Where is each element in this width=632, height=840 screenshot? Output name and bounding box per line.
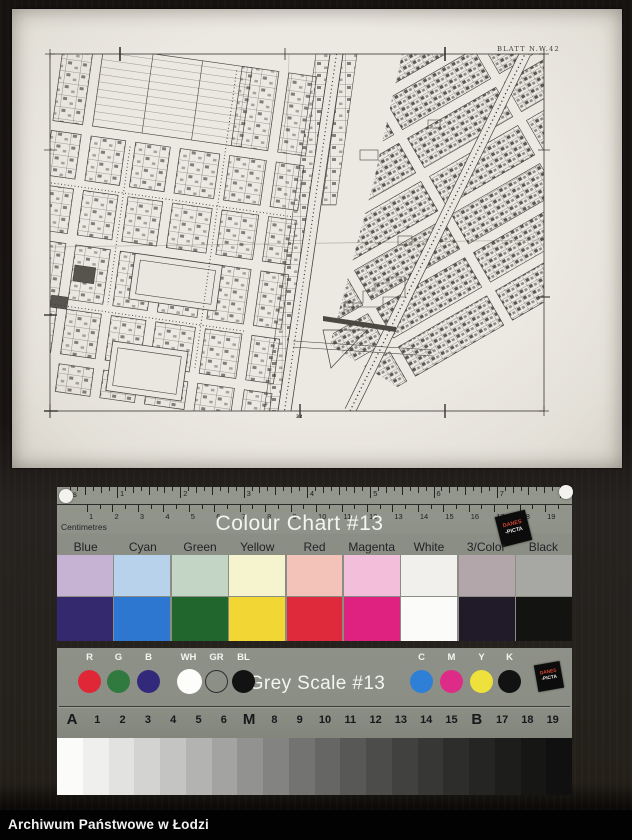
cm-tick — [138, 505, 139, 512]
inch-number: 1 — [120, 489, 124, 498]
grey-step — [160, 738, 186, 795]
cm-tick — [291, 505, 292, 512]
color-swatch-pastel — [516, 555, 572, 596]
color-swatch-pastel — [57, 555, 113, 596]
ruler-tick — [93, 487, 94, 491]
cm-half-tick — [431, 505, 432, 509]
color-swatch-solid — [229, 597, 285, 641]
ruler-tick — [228, 487, 229, 493]
solid-swatch-row — [57, 597, 572, 641]
grey-step — [186, 738, 212, 795]
grey-step — [495, 738, 521, 795]
danes-picta-logo: DANES-PICTA — [534, 661, 564, 692]
cm-tick — [214, 505, 215, 512]
grey-scale-card: Grey Scale #13 DANES-PICTA RGBWHGRBLCMYK… — [57, 648, 572, 795]
ruler-tick — [418, 487, 419, 493]
inch-number: 4 — [310, 489, 314, 498]
color-swatch-pastel — [229, 555, 285, 596]
ruler-tick — [489, 487, 490, 491]
cm-tick — [240, 505, 241, 512]
ruler-tick — [370, 487, 371, 498]
ruler-tick — [497, 487, 498, 498]
y-dot — [470, 670, 493, 693]
index-label: 14 — [413, 714, 439, 726]
ruler-tick — [244, 487, 245, 498]
cm-half-tick — [100, 505, 101, 509]
index-label: 5 — [186, 714, 212, 726]
cm-half-tick — [227, 505, 228, 509]
color-swatch-pastel — [287, 555, 343, 596]
ruler-tick — [378, 487, 379, 491]
colour-chart-title: Colour Chart #13 — [57, 512, 542, 536]
index-label: 11 — [337, 714, 363, 726]
ruler-tick — [513, 487, 514, 493]
ruler-tick — [157, 487, 158, 491]
r-dot — [78, 670, 101, 693]
index-label: 12 — [363, 714, 389, 726]
grey-step — [469, 738, 495, 795]
grey-step — [392, 738, 418, 795]
cm-half-tick — [151, 505, 152, 509]
index-label: 8 — [261, 714, 287, 726]
color-swatch-pastel — [401, 555, 457, 596]
ruler-tick — [133, 487, 134, 493]
grey-step — [366, 738, 392, 795]
color-swatch-pastel — [172, 555, 228, 596]
swatch-label: Yellow — [229, 540, 286, 555]
cm-half-tick — [405, 505, 406, 509]
ruler-tick — [164, 487, 165, 493]
cm-half-tick — [202, 505, 203, 509]
cm-tick — [367, 505, 368, 512]
index-label: 1 — [84, 714, 110, 726]
ruler-tick — [299, 487, 300, 491]
inch-number: 3 — [247, 489, 251, 498]
index-label: B — [464, 711, 490, 728]
ruler-tick — [362, 487, 363, 491]
ruler-tick — [196, 487, 197, 493]
index-label: 6 — [211, 714, 237, 726]
index-label: M — [236, 711, 262, 728]
ruler-tick — [172, 487, 173, 491]
cm-tick — [87, 505, 88, 512]
index-label: 4 — [160, 714, 186, 726]
index-label: 2 — [110, 714, 136, 726]
grey-step — [443, 738, 469, 795]
archive-caption: Archiwum Państwowe w Łodzi — [8, 817, 209, 832]
grey-step — [546, 738, 572, 795]
ruler-tick — [536, 487, 537, 491]
index-label: 9 — [287, 714, 313, 726]
cm-tick — [545, 505, 546, 512]
k-dot — [498, 670, 521, 693]
grey-step — [521, 738, 547, 795]
ruler-tick — [188, 487, 189, 491]
index-label: 18 — [514, 714, 540, 726]
grey-step — [289, 738, 315, 795]
ruler-tick — [402, 487, 403, 495]
punch-hole — [59, 489, 73, 503]
ruler-tick — [331, 487, 332, 491]
ruler-tick — [77, 487, 78, 491]
index-label: 13 — [388, 714, 414, 726]
dot-letter: BL — [226, 652, 262, 663]
inch-number: 6 — [437, 489, 441, 498]
ruler-tick — [521, 487, 522, 491]
cm-tick — [316, 505, 317, 512]
grey-step — [263, 738, 289, 795]
cm-tick — [265, 505, 266, 512]
cm-half-tick — [125, 505, 126, 509]
grey-step — [109, 738, 135, 795]
cm-half-tick — [456, 505, 457, 509]
color-swatch-solid — [172, 597, 228, 641]
inch-number: 5 — [373, 489, 377, 498]
ruler-tick — [259, 487, 260, 493]
cm-tick — [443, 505, 444, 512]
colour-chart-card: ches Centimetres 12345671234567891011121… — [57, 487, 572, 641]
ruler-tick — [220, 487, 221, 491]
swatch-label: Blue — [57, 540, 114, 555]
grey-step — [134, 738, 160, 795]
ruler-tick — [410, 487, 411, 491]
cm-half-tick — [481, 505, 482, 509]
archival-scan: BLATT N.W.42 32 ches Centimetres 1234567… — [0, 0, 632, 840]
g-dot — [107, 670, 130, 693]
grey-step — [237, 738, 263, 795]
color-swatch-solid — [516, 597, 572, 641]
ruler-tick — [252, 487, 253, 491]
swatch-label: Magenta — [343, 540, 400, 555]
cm-half-tick — [380, 505, 381, 509]
ruler-tick — [465, 487, 466, 495]
ruler-tick — [441, 487, 442, 491]
cm-tick — [163, 505, 164, 512]
cm-half-tick — [507, 505, 508, 509]
cm-half-tick — [176, 505, 177, 509]
ruler-tick — [291, 487, 292, 493]
swatch-label: 3/Color — [458, 540, 515, 555]
ruler-tick — [434, 487, 435, 498]
cm-tick — [418, 505, 419, 512]
pastel-swatch-row — [57, 555, 572, 596]
ruler-tick — [346, 487, 347, 491]
ruler-tick — [481, 487, 482, 493]
ruler-tick — [101, 487, 102, 493]
c-dot — [410, 670, 433, 693]
cm-half-tick — [252, 505, 253, 509]
punch-hole — [559, 485, 573, 499]
ruler-tick — [283, 487, 284, 491]
dot-letter: B — [131, 652, 167, 663]
index-label: 3 — [135, 714, 161, 726]
caption-bar: Archiwum Państwowe w Łodzi — [0, 810, 632, 840]
gr-dot — [205, 670, 228, 693]
inch-number: 2 — [183, 489, 187, 498]
index-label: 19 — [540, 714, 566, 726]
cm-tick — [342, 505, 343, 512]
ruler-tick — [528, 487, 529, 495]
ruler-tick — [180, 487, 181, 498]
ruler-tick — [149, 487, 150, 495]
cm-half-tick — [532, 505, 533, 509]
ruler-tick — [267, 487, 268, 491]
cm-number: 19 — [547, 512, 555, 521]
grey-step — [83, 738, 109, 795]
swatch-label: Black — [515, 540, 572, 555]
ruler-tick — [275, 487, 276, 495]
ruler-tick — [236, 487, 237, 491]
grey-step — [57, 738, 83, 795]
index-label: A — [59, 711, 85, 728]
color-swatch-solid — [459, 597, 515, 641]
map-photograph: BLATT N.W.42 32 — [12, 9, 622, 468]
ruler-tick — [449, 487, 450, 493]
ruler-tick — [323, 487, 324, 493]
grey-step — [315, 738, 341, 795]
swatch-label: Cyan — [114, 540, 171, 555]
ruler-tick — [117, 487, 118, 498]
grey-step — [340, 738, 366, 795]
dot-letter: K — [492, 652, 528, 663]
index-label: 10 — [312, 714, 338, 726]
ruler-tick — [315, 487, 316, 491]
cm-tick — [112, 505, 113, 512]
ruler-tick — [339, 487, 340, 495]
map-content — [16, 9, 622, 432]
ruler-tick — [426, 487, 427, 491]
cm-tick — [469, 505, 470, 512]
ruler-tick — [386, 487, 387, 493]
ruler-tick — [85, 487, 86, 495]
swatch-labels: BlueCyanGreenYellowRedMagentaWhite3/Colo… — [57, 540, 572, 555]
m-dot — [440, 670, 463, 693]
ruler-tick — [457, 487, 458, 491]
ruler-tick — [505, 487, 506, 491]
ruler-tick — [552, 487, 553, 491]
swatch-label: Red — [286, 540, 343, 555]
wh-dot — [177, 669, 202, 694]
cm-half-tick — [558, 505, 559, 509]
color-swatch-solid — [344, 597, 400, 641]
color-swatch-solid — [401, 597, 457, 641]
map-sheet-label: BLATT N.W.42 — [497, 45, 560, 53]
ruler-tick — [544, 487, 545, 493]
index-label: 15 — [439, 714, 465, 726]
cm-half-tick — [303, 505, 304, 509]
cm-half-tick — [329, 505, 330, 509]
color-swatch-pastel — [459, 555, 515, 596]
grey-step — [418, 738, 444, 795]
map-drawing: BLATT N.W.42 32 — [12, 9, 622, 468]
color-swatch-solid — [114, 597, 170, 641]
ruler-tick — [125, 487, 126, 491]
map-margin-number: 32 — [296, 414, 302, 420]
color-swatch-pastel — [114, 555, 170, 596]
color-swatch-solid — [57, 597, 113, 641]
ruler-tick — [473, 487, 474, 491]
color-swatch-solid — [287, 597, 343, 641]
ruler-tick — [307, 487, 308, 498]
swatch-label: Green — [171, 540, 228, 555]
grey-step-strip — [57, 738, 572, 795]
cm-half-tick — [278, 505, 279, 509]
ruler-tick — [141, 487, 142, 491]
grey-step — [212, 738, 238, 795]
ruler-tick — [394, 487, 395, 491]
bl-dot — [232, 670, 255, 693]
b-dot — [137, 670, 160, 693]
cm-half-tick — [354, 505, 355, 509]
engraved-line — [59, 706, 570, 707]
color-swatch-pastel — [344, 555, 400, 596]
cm-tick — [494, 505, 495, 512]
inch-number: 7 — [500, 489, 504, 498]
swatch-label: White — [400, 540, 457, 555]
ruler-tick — [204, 487, 205, 491]
cm-tick — [189, 505, 190, 512]
index-label: 17 — [489, 714, 515, 726]
ruler-tick — [354, 487, 355, 493]
ruler-tick — [212, 487, 213, 495]
cm-tick — [392, 505, 393, 512]
ruler-tick — [109, 487, 110, 491]
